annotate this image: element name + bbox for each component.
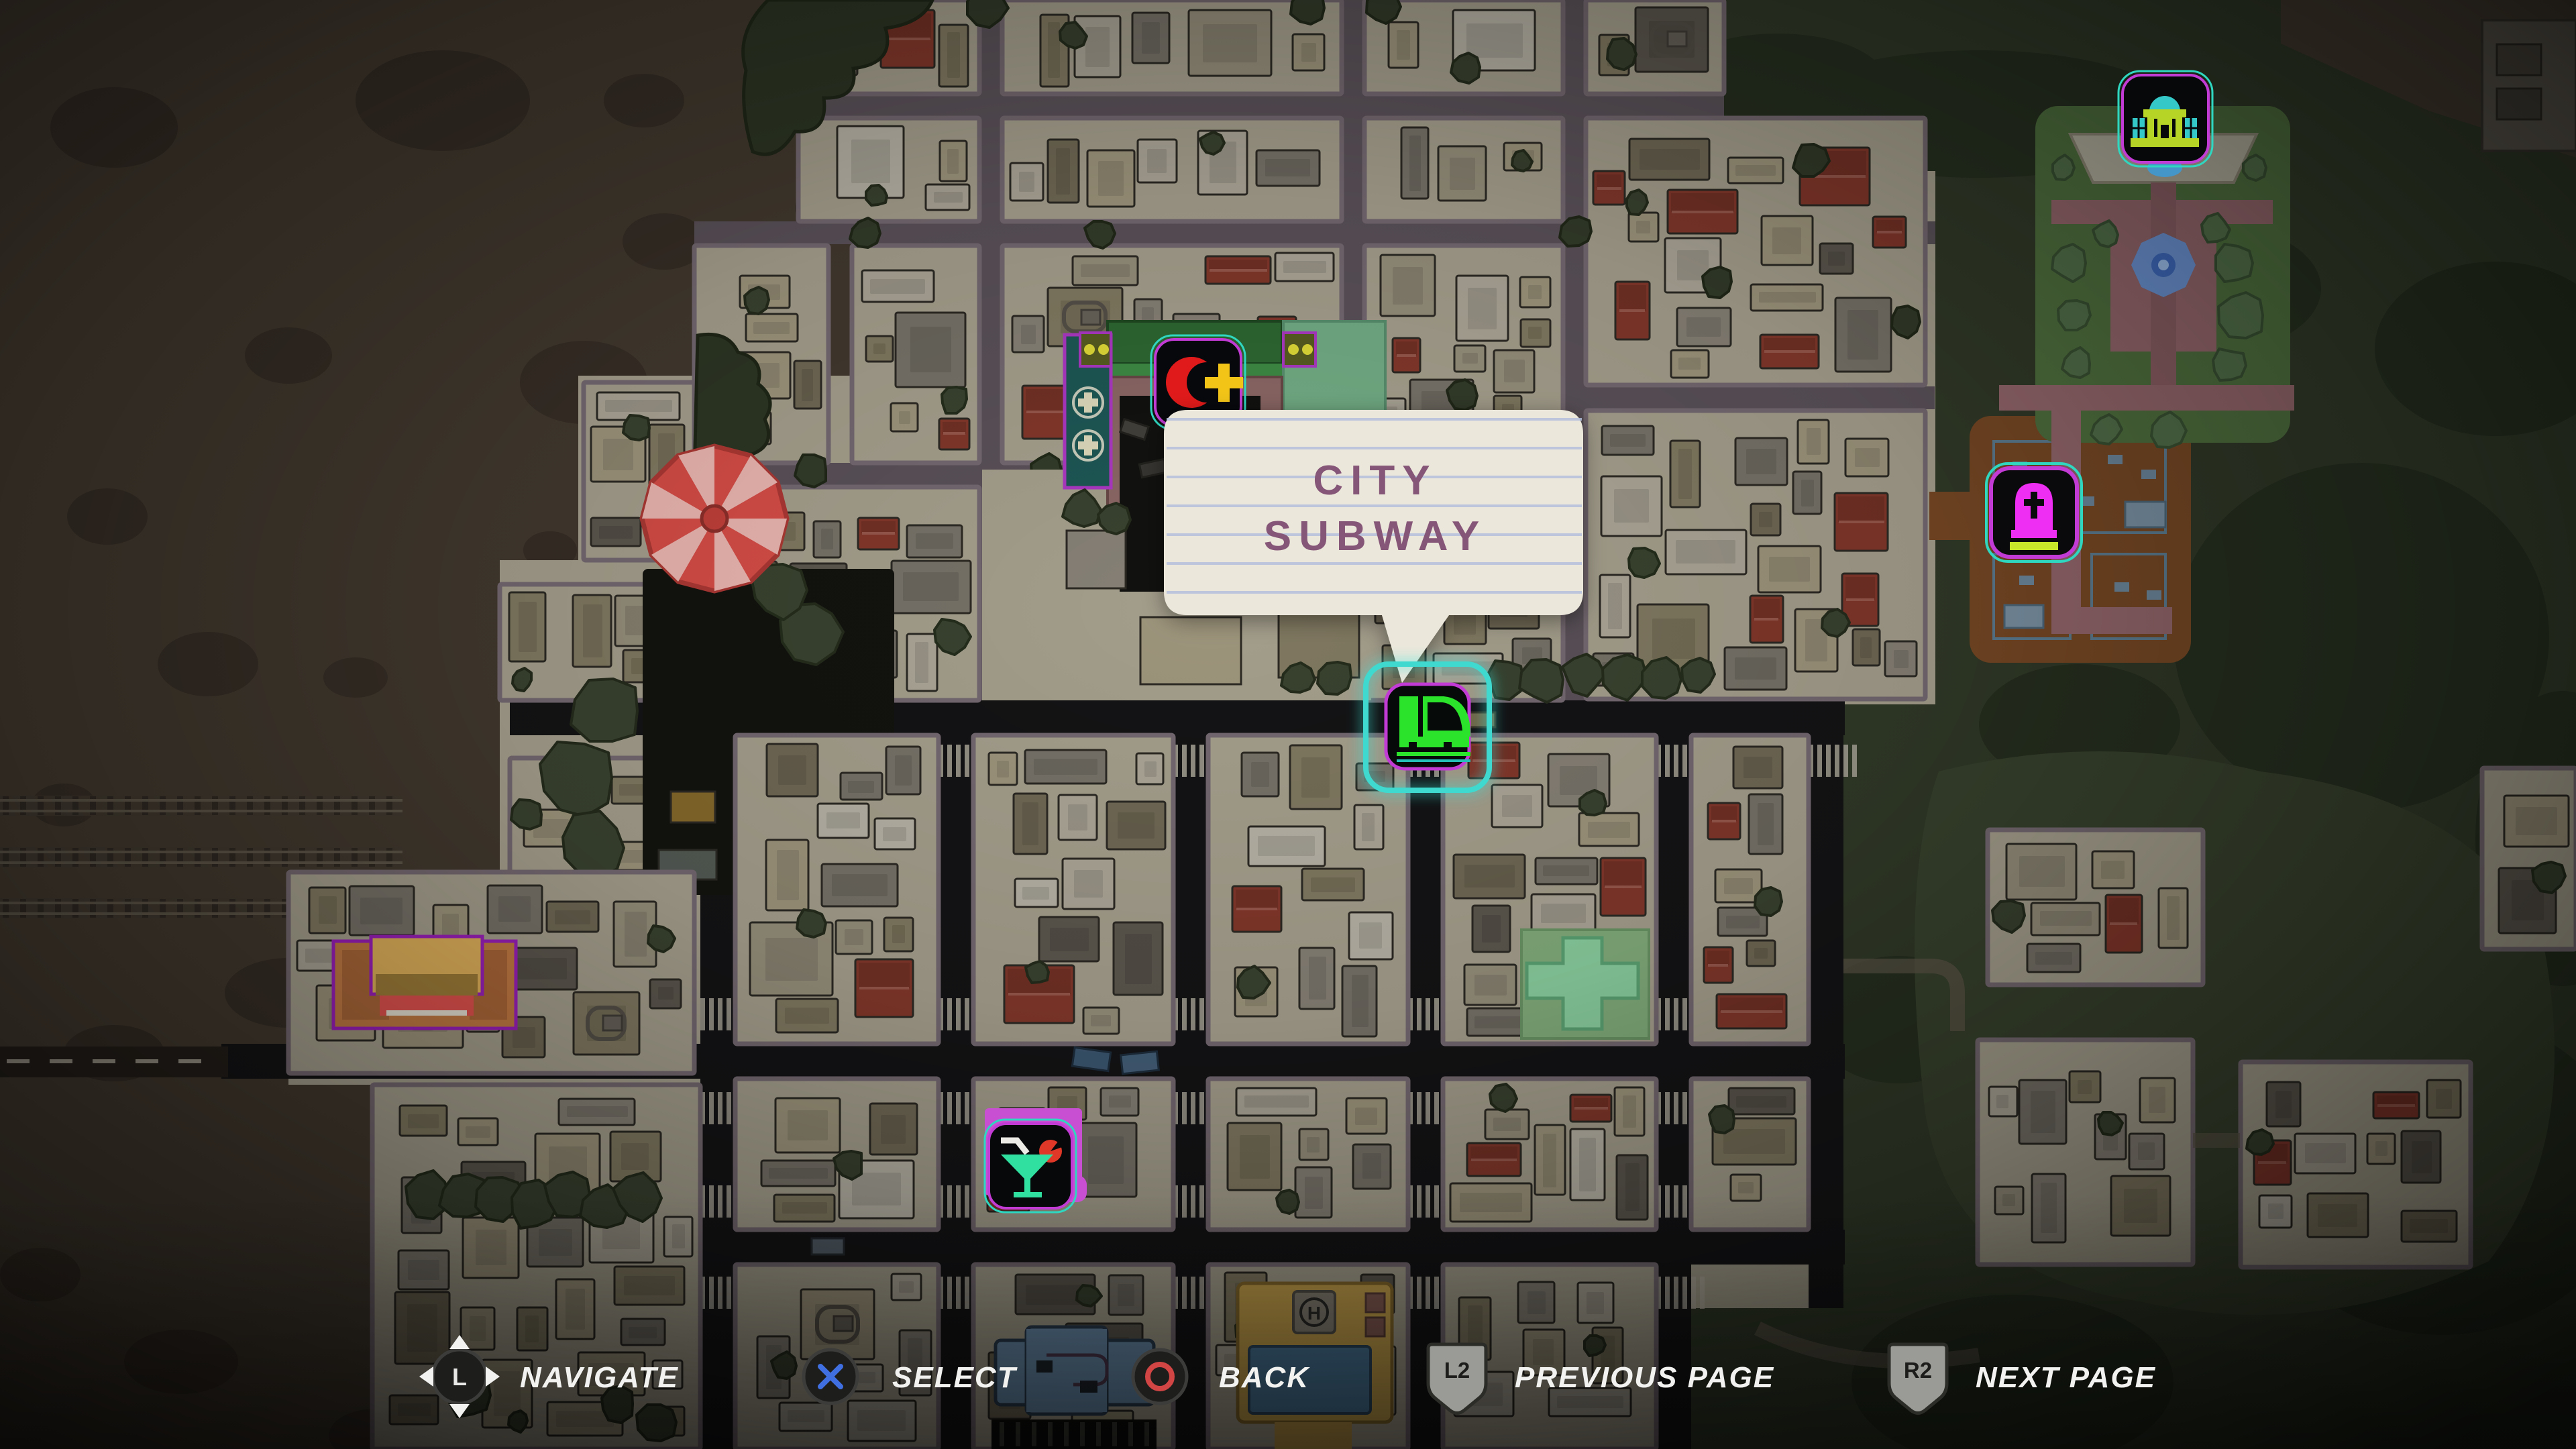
svg-text:R2: R2 — [1904, 1358, 1932, 1383]
svg-text:CITY: CITY — [1313, 458, 1437, 504]
svg-text:SUBWAY: SUBWAY — [1264, 513, 1487, 559]
svg-text:NAVIGATE: NAVIGATE — [520, 1361, 679, 1394]
svg-text:PREVIOUS PAGE: PREVIOUS PAGE — [1515, 1361, 1774, 1394]
svg-text:L: L — [452, 1363, 467, 1391]
svg-text:L2: L2 — [1444, 1358, 1470, 1383]
svg-text:BACK: BACK — [1219, 1361, 1310, 1394]
svg-text:SELECT: SELECT — [892, 1361, 1018, 1394]
svg-text:NEXT PAGE: NEXT PAGE — [1976, 1361, 2156, 1394]
